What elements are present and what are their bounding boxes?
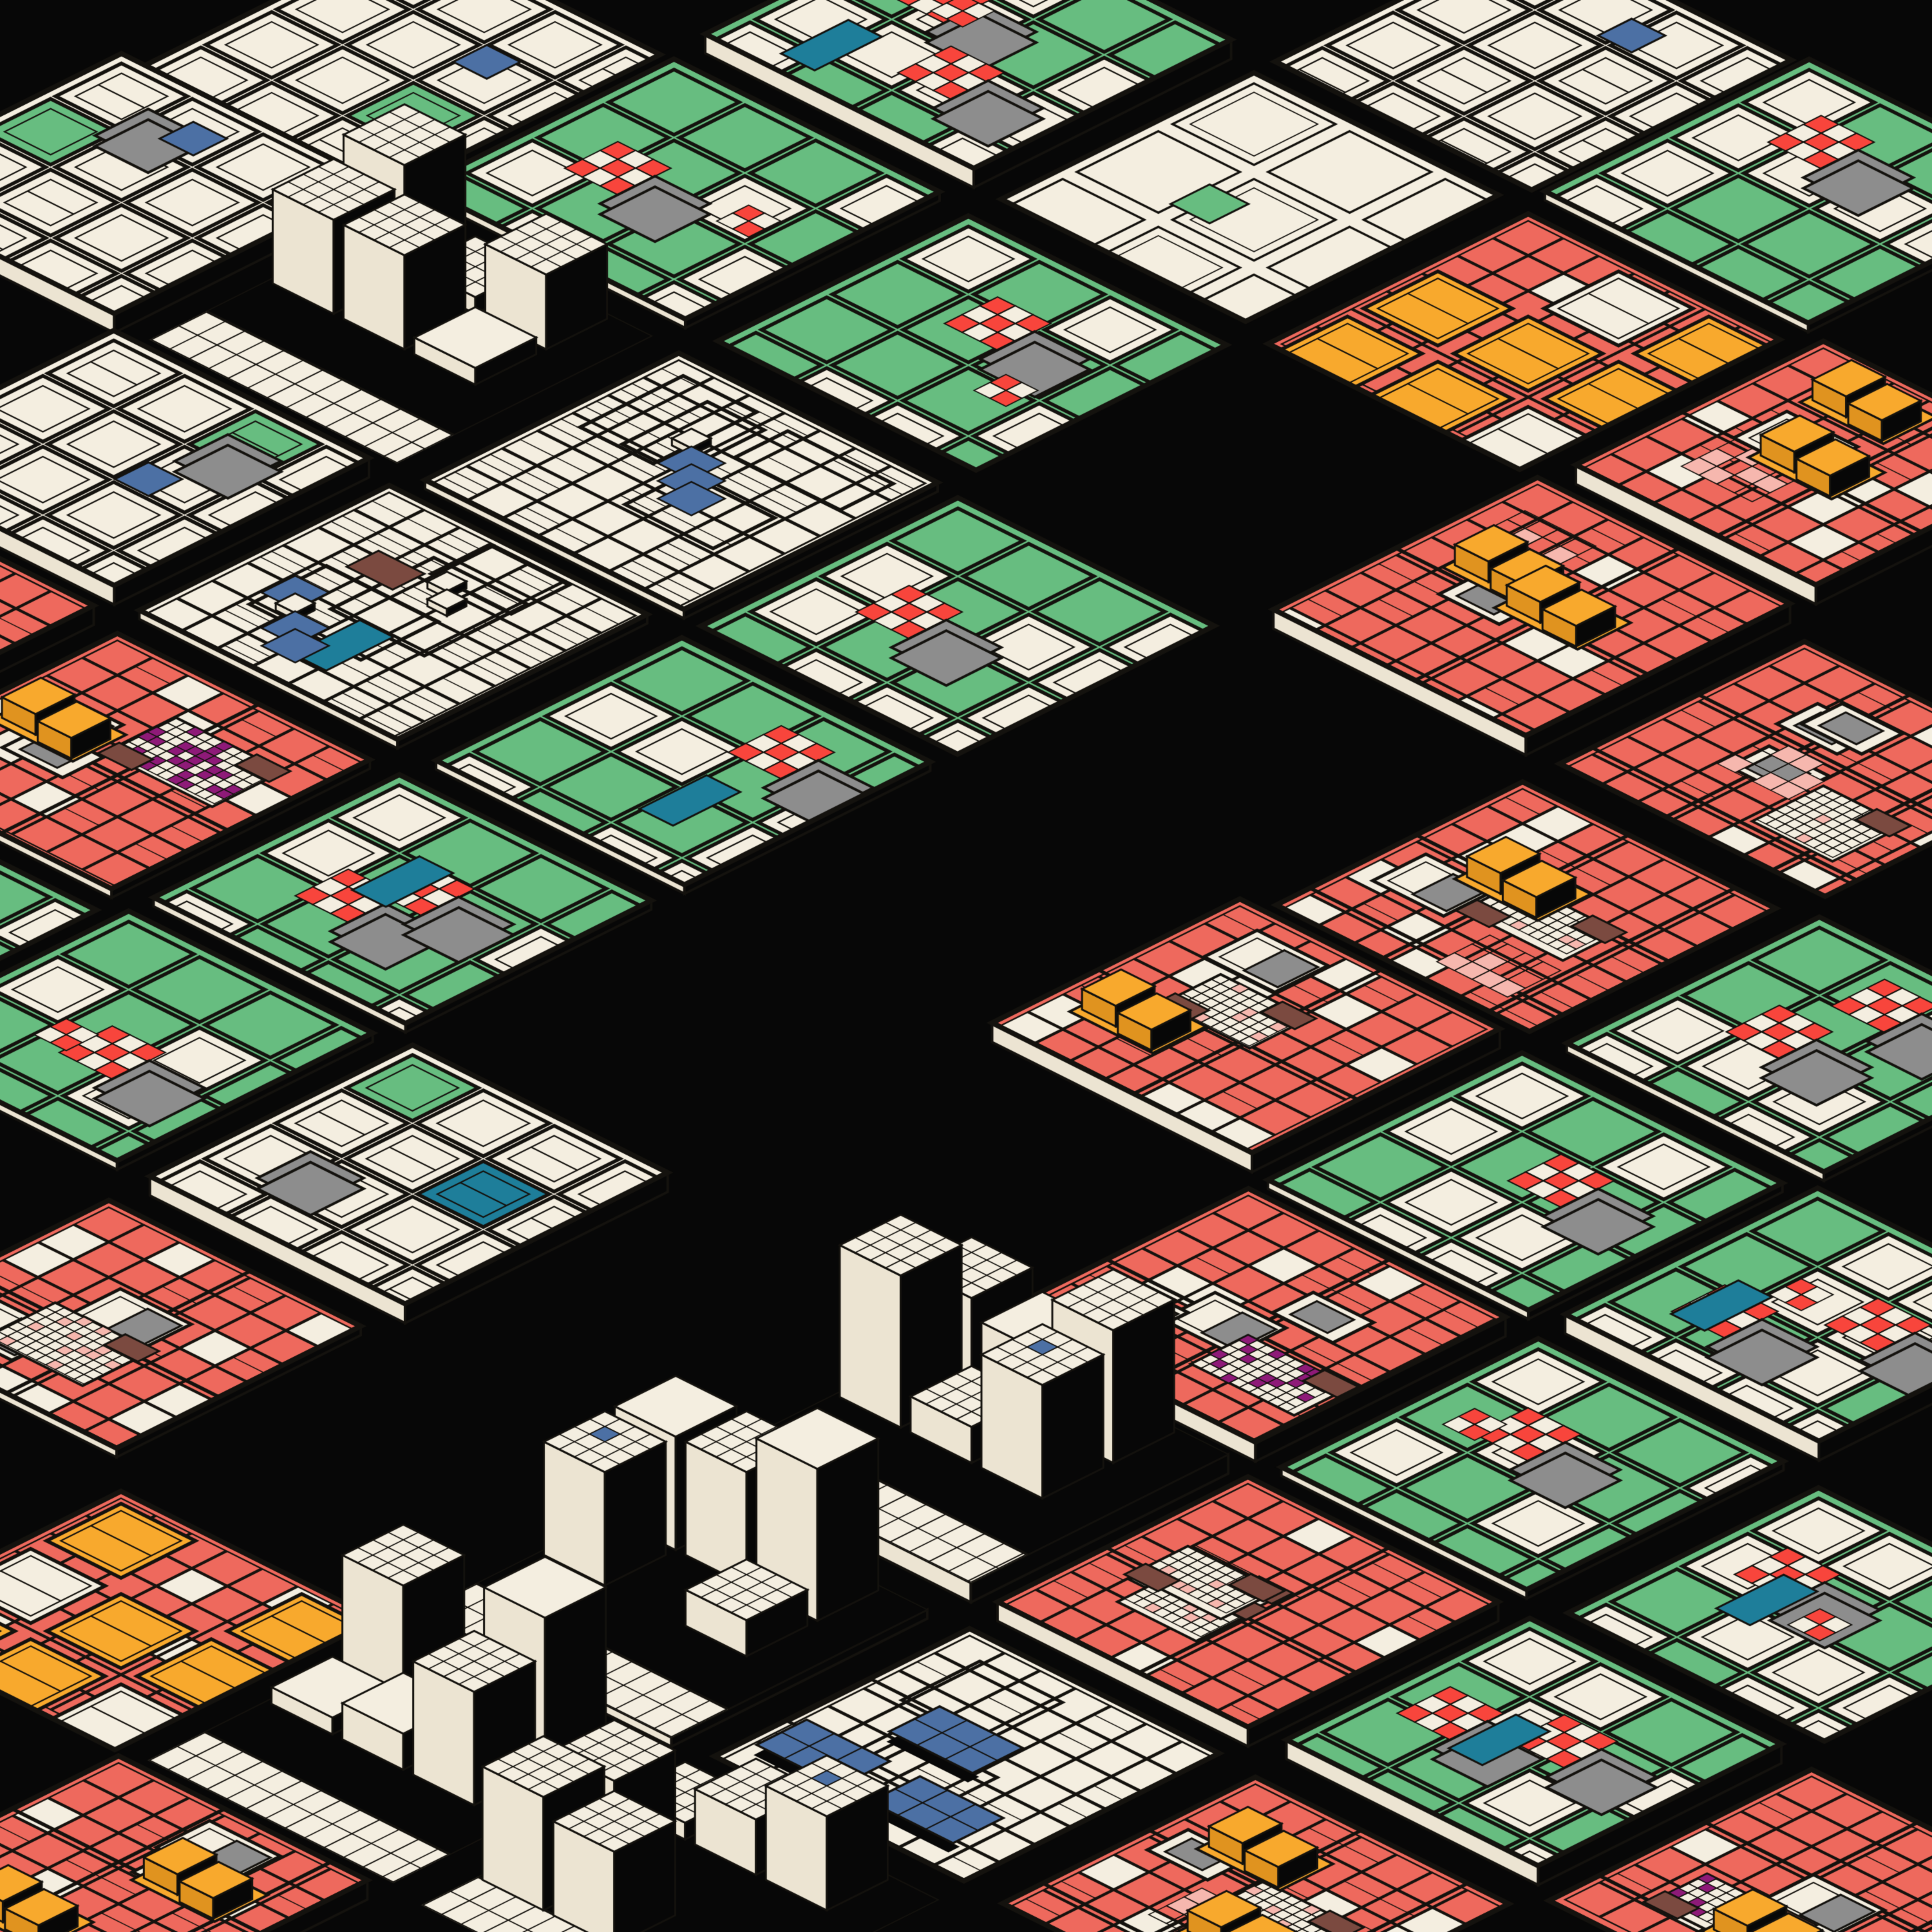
artwork-canvas — [0, 0, 1932, 1932]
generative-isometric-artwork — [0, 0, 1932, 1932]
